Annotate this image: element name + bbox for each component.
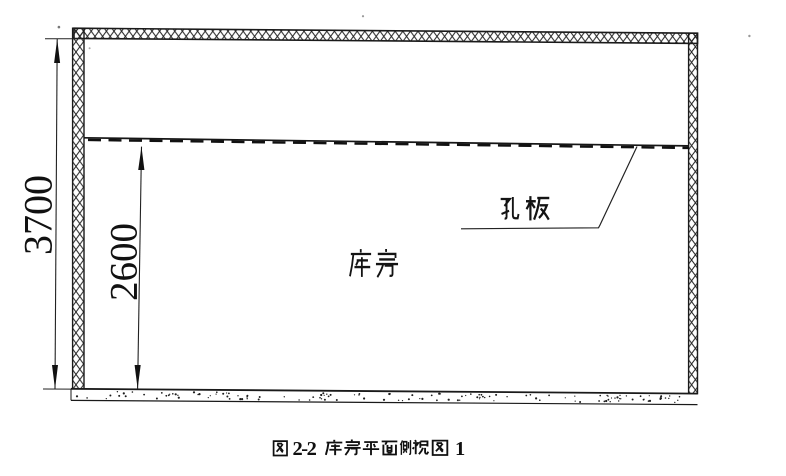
svg-text:3700: 3700 [16,175,61,255]
svg-text:2-2: 2-2 [293,438,317,460]
svg-text:1: 1 [455,438,465,460]
svg-text:2600: 2600 [103,223,146,301]
